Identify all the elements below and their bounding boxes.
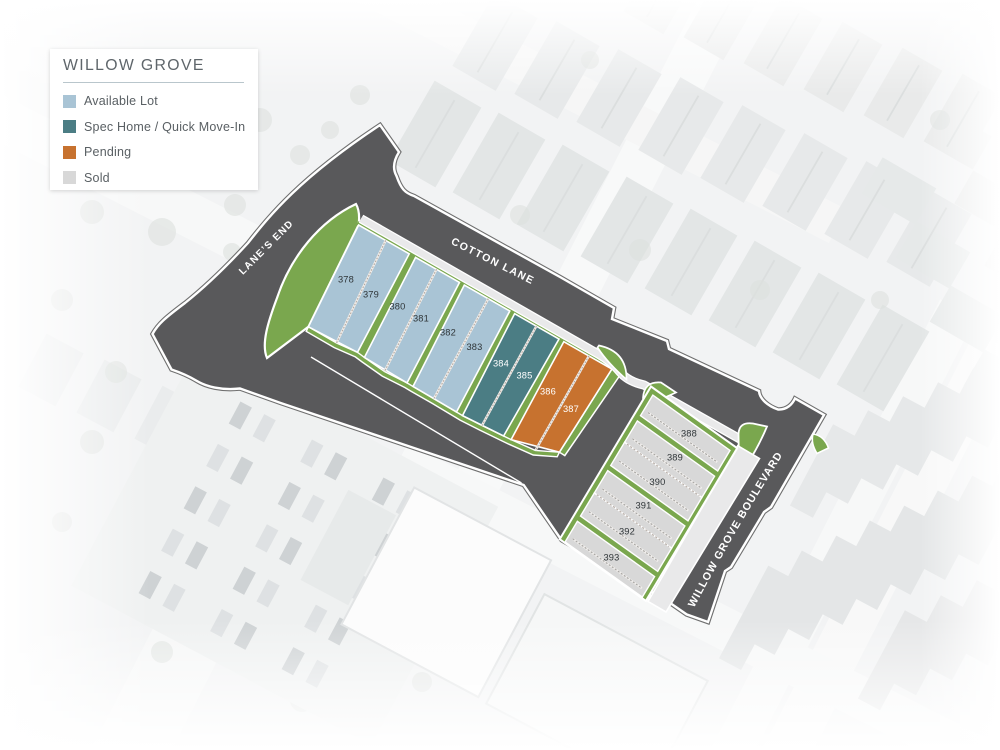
svg-text:382: 382 [440, 327, 456, 337]
svg-text:388: 388 [681, 428, 697, 438]
svg-text:389: 389 [667, 452, 683, 462]
svg-text:392: 392 [619, 526, 635, 536]
svg-text:391: 391 [635, 500, 651, 510]
svg-text:386: 386 [540, 386, 556, 396]
svg-text:384: 384 [493, 358, 509, 368]
svg-text:390: 390 [649, 477, 665, 487]
svg-text:393: 393 [603, 552, 619, 562]
svg-text:383: 383 [466, 342, 482, 352]
svg-text:381: 381 [413, 313, 429, 323]
svg-text:379: 379 [363, 289, 379, 299]
svg-text:380: 380 [389, 301, 405, 311]
svg-text:387: 387 [563, 404, 579, 414]
svg-text:378: 378 [338, 274, 354, 284]
svg-text:385: 385 [516, 370, 532, 380]
